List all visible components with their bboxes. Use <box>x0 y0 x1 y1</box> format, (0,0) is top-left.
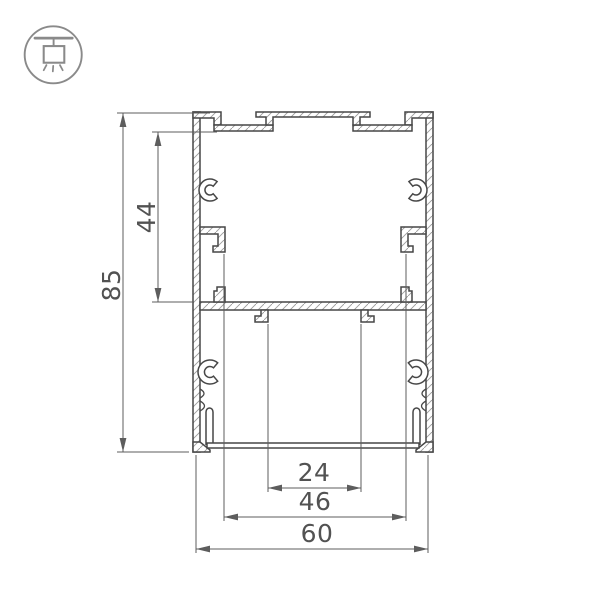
dimension-height-85: 85 <box>97 113 126 452</box>
dim-label-60: 60 <box>301 519 334 548</box>
extension-lines <box>117 113 428 553</box>
dimension-slot-24: 24 <box>268 458 361 488</box>
dim-label-44: 44 <box>132 201 161 234</box>
profile-drawing: 85 44 24 46 60 <box>0 0 600 600</box>
middle-plate <box>200 302 426 310</box>
right-slot-floor <box>353 125 412 131</box>
diffuser-plate <box>207 443 419 448</box>
left-diffuser-clip <box>206 408 213 445</box>
dim-label-24: 24 <box>298 458 331 487</box>
right-diffuser-clip <box>413 408 420 445</box>
dimension-overall-60: 60 <box>196 519 428 549</box>
upper-left-screw-boss <box>199 179 217 201</box>
left-underplate-hook <box>255 310 268 322</box>
dim-label-85: 85 <box>97 269 126 302</box>
lower-left-screw-boss <box>198 360 218 384</box>
left-inner-hook <box>200 227 225 252</box>
dimension-inner-46: 46 <box>224 487 406 517</box>
left-plate-tab <box>214 287 225 302</box>
dimension-channel-44: 44 <box>132 132 161 302</box>
left-slot-floor <box>214 125 273 131</box>
top-center-plate <box>256 112 370 125</box>
right-inner-hook <box>401 227 426 252</box>
screenshot-canvas: 85 44 24 46 60 <box>0 0 600 600</box>
left-outer-wall <box>193 112 200 452</box>
right-outer-wall <box>426 112 433 452</box>
lower-right-screw-boss <box>408 360 428 384</box>
dim-label-46: 46 <box>299 487 332 516</box>
upper-right-screw-boss <box>409 179 427 201</box>
dimension-layer: 85 44 24 46 60 <box>97 113 428 553</box>
right-underplate-hook <box>361 310 374 322</box>
profile-section <box>193 112 433 452</box>
